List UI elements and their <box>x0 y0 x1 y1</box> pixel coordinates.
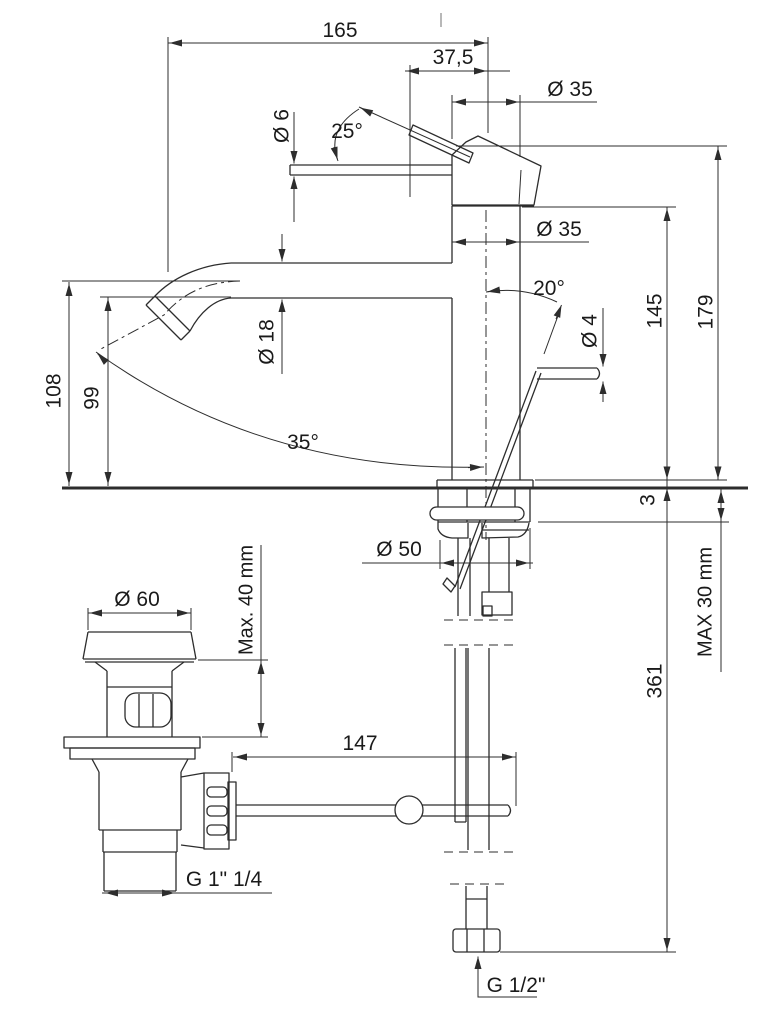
dim-body-dia-label: Ø 35 <box>536 218 582 241</box>
dim-inlet-thread-label: G 1/2" <box>487 974 546 997</box>
linkage-rod <box>236 796 511 824</box>
faucet-body <box>452 206 520 540</box>
dim-rod-dia-label: Ø 4 <box>579 314 602 348</box>
dim-heights-right: 145 179 <box>456 146 727 952</box>
dim-147-label: 147 <box>342 732 377 755</box>
dim-361-label: 361 <box>644 663 667 698</box>
mounting-shell <box>430 489 530 538</box>
dim-lever-angle: 25° <box>331 108 371 161</box>
waste-side-window <box>125 693 171 727</box>
dim-spout-heights: 108 99 <box>43 281 240 486</box>
dim-179-label: 179 <box>695 294 718 329</box>
dim-base-dia-label: Ø 50 <box>376 538 422 561</box>
lever-handle <box>290 107 473 175</box>
dimensions: 165 37,5 Ø 35 Ø 35 <box>43 19 729 997</box>
dim-rod-dia: Ø 4 <box>579 308 603 402</box>
dim-linkage: 147 <box>232 732 516 806</box>
rod-foot <box>443 578 455 592</box>
inlet-hex-nut <box>453 929 500 952</box>
waste-tailpipe <box>104 852 176 891</box>
dim-spout-dia: Ø 18 <box>256 234 282 374</box>
base-gasket <box>430 507 524 520</box>
dim-plate: 3 <box>637 489 667 506</box>
dim-108-label: 108 <box>43 373 66 408</box>
clamp-plate <box>64 737 200 748</box>
base-flange <box>437 480 533 487</box>
pop-up-knob <box>537 368 600 379</box>
ball-joint <box>395 796 423 824</box>
waste-cap <box>83 632 196 662</box>
dim-waste-dia-label: Ø 60 <box>114 588 160 611</box>
dim-below-counter: 361 <box>500 663 676 952</box>
dim-99-label: 99 <box>81 386 104 409</box>
dim-37-5-label: 37,5 <box>433 46 474 69</box>
dim-deck-max: Max. 40 mm <box>198 545 268 737</box>
spout-centerline <box>99 281 240 350</box>
dim-waste-dia: Ø 60 <box>88 588 191 630</box>
linkage-lock-nut <box>204 773 236 849</box>
dim-rod-angle: 20° <box>486 277 565 319</box>
pop-up-rod <box>443 313 600 592</box>
dim-145-label: 145 <box>644 293 667 328</box>
dim-counter-max: MAX 30 mm <box>538 489 729 672</box>
dim-spout-dia-label: Ø 18 <box>256 319 279 365</box>
dim-35deg-label: 35° <box>287 431 319 454</box>
technical-drawing-page: 165 37,5 Ø 35 Ø 35 <box>0 0 783 1024</box>
dim-max40-label: Max. 40 mm <box>235 545 257 655</box>
dim-3-label: 3 <box>637 494 660 506</box>
dim-25-label: 25° <box>331 120 363 143</box>
dim-165-label: 165 <box>322 19 357 42</box>
mounting-stud-and-nut <box>482 538 512 616</box>
dim-inlet-thread: G 1/2" <box>478 957 545 998</box>
dim-max30-label: MAX 30 mm <box>694 547 716 657</box>
dim-head-dia-label: Ø 35 <box>547 78 593 101</box>
dim-lever-dia-label: Ø 6 <box>271 109 294 143</box>
dim-base-dia: Ø 50 <box>362 528 533 569</box>
dim-waste-thread: G 1" 1/4 <box>102 868 272 893</box>
supply-pipe <box>444 538 516 929</box>
dim-swivel-angle: 35° <box>96 352 484 468</box>
dim-head-dia: Ø 35 <box>452 78 597 157</box>
dim-waste-thread-label: G 1" 1/4 <box>186 868 263 891</box>
aerator <box>146 296 190 340</box>
lever-axis-line <box>359 107 470 157</box>
pop-up-rod-lower <box>455 648 466 822</box>
waste-assembly <box>64 632 236 891</box>
faucet-dimension-drawing: 165 37,5 Ø 35 Ø 35 <box>0 0 783 1024</box>
dim-20-label: 20° <box>533 277 565 300</box>
